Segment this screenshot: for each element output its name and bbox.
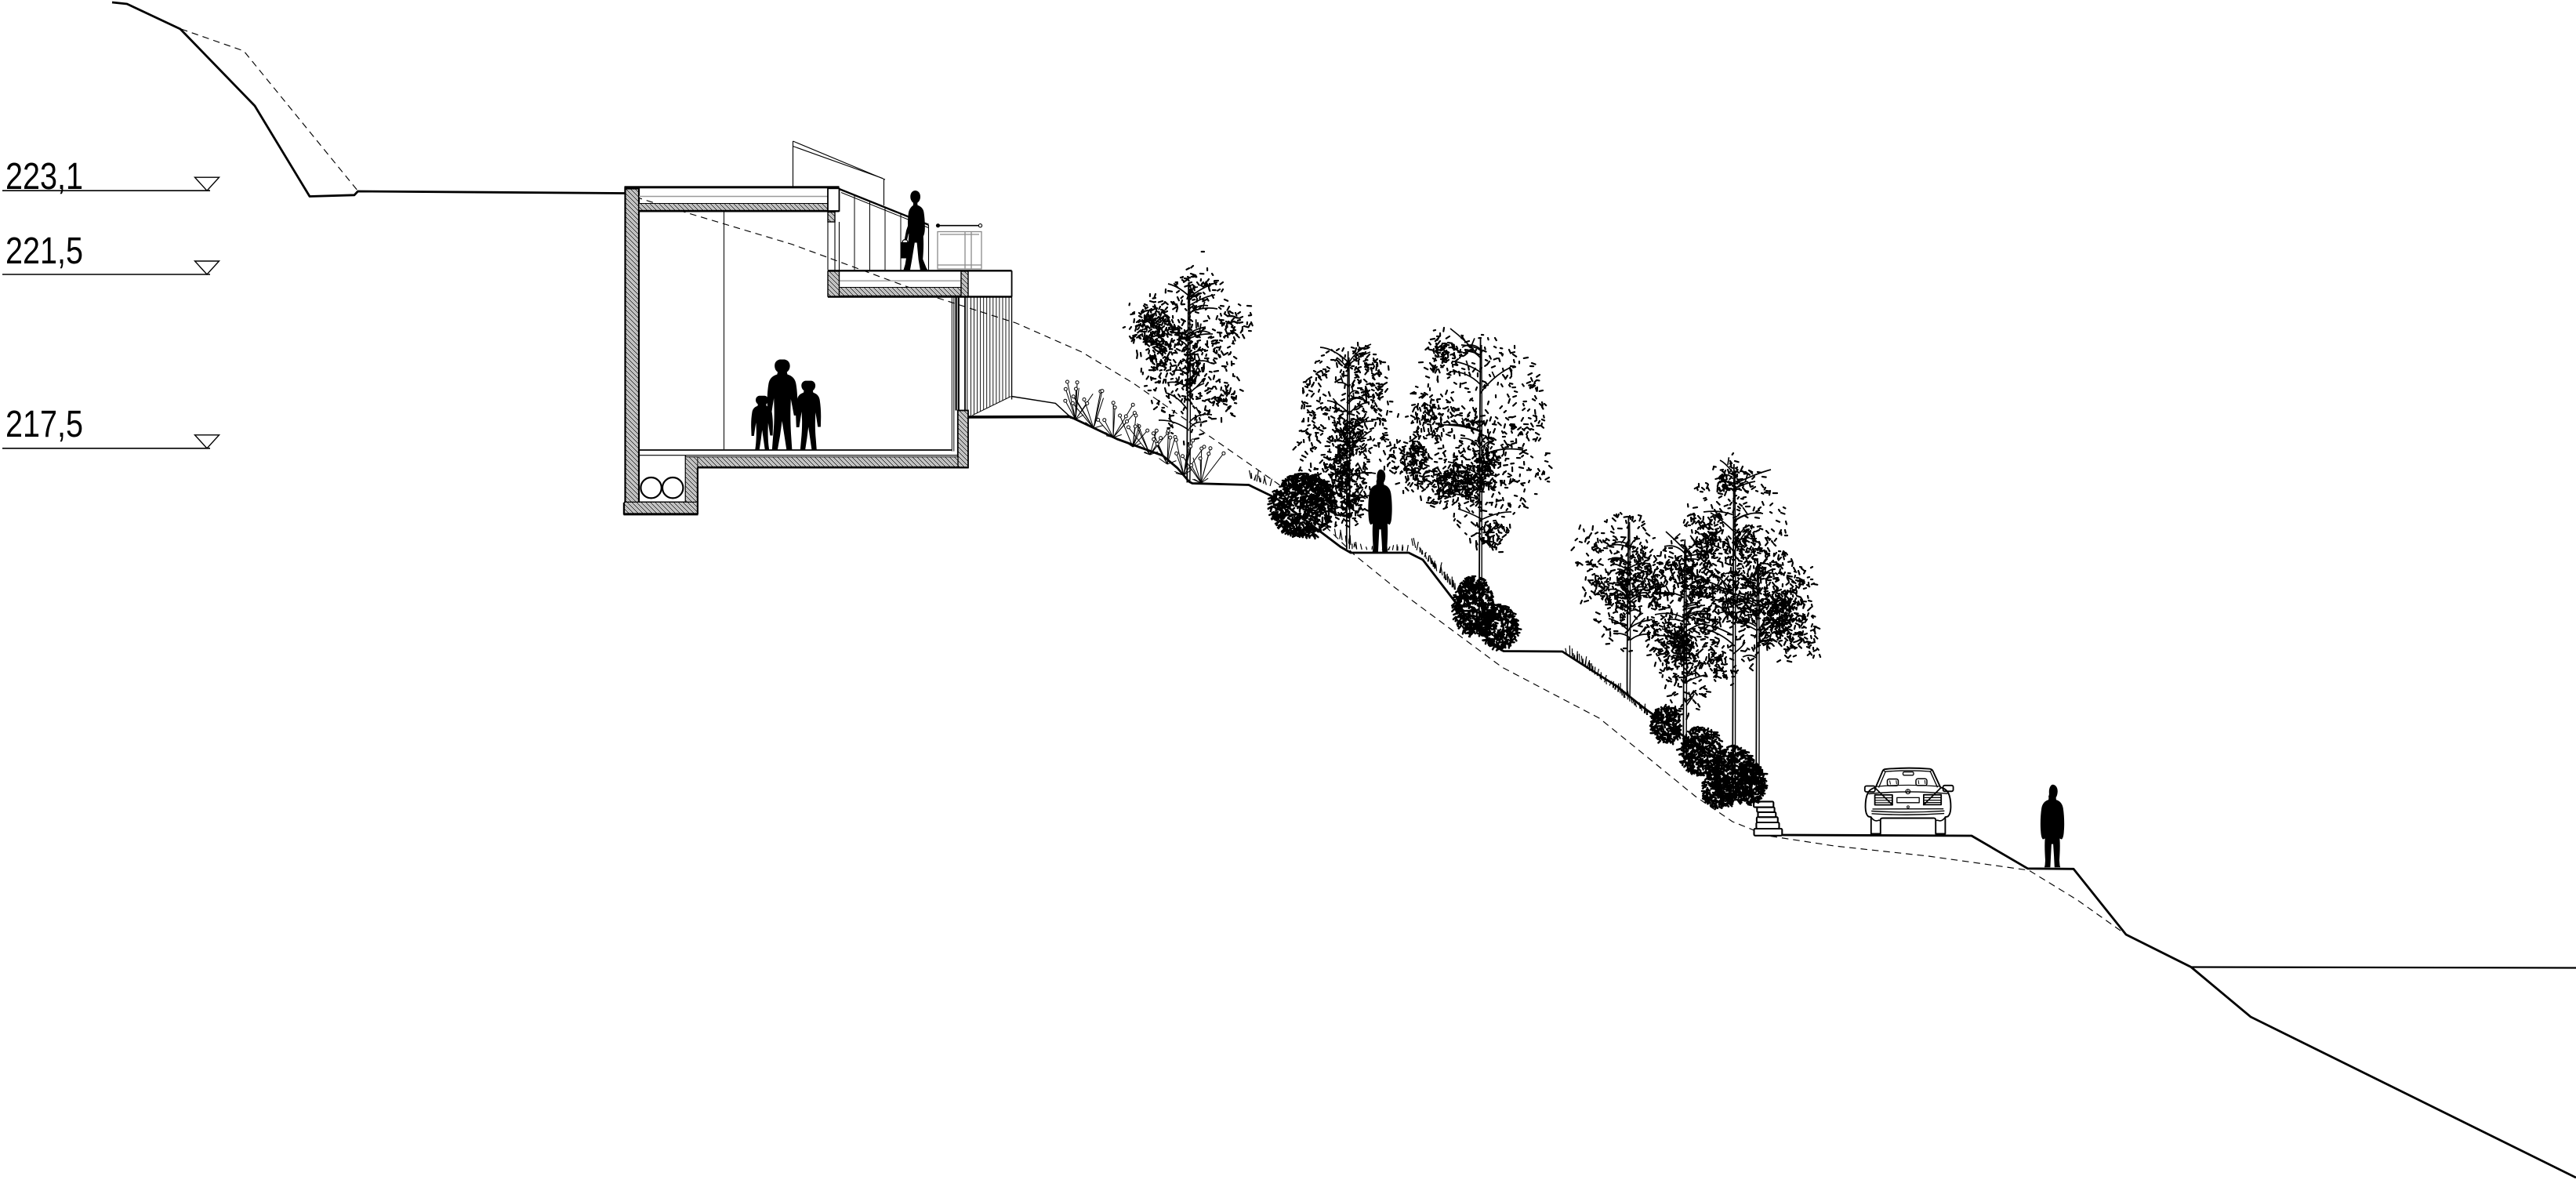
svg-text:217,5: 217,5 xyxy=(5,404,83,445)
svg-text:223,1: 223,1 xyxy=(5,156,83,198)
svg-text:221,5: 221,5 xyxy=(5,231,83,272)
